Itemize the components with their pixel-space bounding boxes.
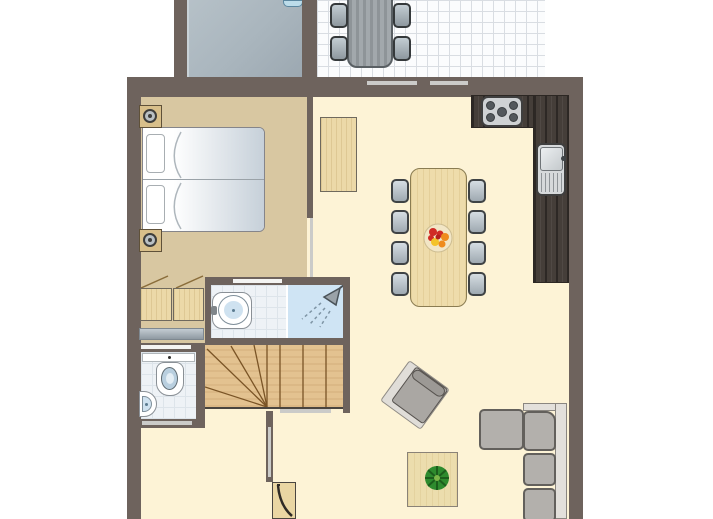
terrace-chair [330, 36, 348, 61]
wall-bathroom-bottom [205, 338, 343, 345]
dining-chair [391, 179, 409, 203]
toilet-bowl [156, 362, 184, 396]
dining-chair [468, 241, 486, 265]
door-swing-icon [273, 483, 294, 517]
sofa-cushion [523, 453, 556, 486]
terrace-chair [330, 3, 348, 28]
lamp-icon [143, 109, 157, 123]
plant-icon [422, 463, 452, 493]
dining-chair [391, 241, 409, 265]
dining-chair [391, 272, 409, 296]
dining-chair [468, 210, 486, 234]
flush-button-icon [168, 356, 171, 359]
tall-cabinet [320, 117, 357, 192]
sliding-door-marker [430, 81, 468, 85]
burner-icon [486, 101, 495, 110]
nightstand [139, 229, 162, 252]
burner-icon [509, 101, 518, 110]
wall-bathroom-right [343, 277, 350, 413]
lamp-icon [143, 233, 157, 247]
bed-fold-lines [143, 128, 266, 233]
wc-door-marker [142, 421, 192, 425]
sliding-door-marker [367, 81, 417, 85]
terrace-chair [393, 3, 411, 28]
wall-top [127, 77, 583, 97]
wall-bathroom-left [205, 285, 211, 345]
toilet-cistern [142, 353, 195, 362]
drain-icon [232, 309, 235, 312]
hall-opening-marker [268, 427, 271, 477]
cabinet-open-door-lines [138, 272, 208, 288]
wall-right [569, 97, 583, 519]
burner-icon [486, 113, 495, 122]
stair-treads [205, 345, 343, 407]
sofa-chaise-cushion [479, 409, 524, 450]
wc-door-marker [141, 345, 191, 349]
showerhead-icon [288, 285, 345, 338]
kitchen-sink [536, 143, 566, 196]
faucet-icon [211, 306, 217, 315]
sofa-cushion [523, 411, 556, 451]
bedroom-bench [139, 328, 204, 340]
fruit-bowl [423, 223, 453, 253]
closet-cabinet [140, 288, 172, 321]
storage-fixture [283, 0, 303, 7]
dining-chair [468, 179, 486, 203]
drain-icon [145, 403, 148, 406]
bathroom-door-marker [233, 279, 282, 283]
terrace-chair [393, 36, 411, 61]
storage-room-floor [187, 0, 302, 77]
wall-left [127, 97, 141, 519]
toilet-seat-inner [166, 373, 174, 384]
burner-icon [497, 107, 507, 117]
front-door [272, 482, 296, 519]
dining-chair [468, 272, 486, 296]
terrace-table [347, 0, 393, 68]
burner-icon [509, 113, 518, 122]
cooktop [481, 96, 523, 127]
staircase [205, 345, 343, 409]
closet-cabinet [173, 288, 204, 321]
shower-floor [286, 285, 343, 338]
nightstand [139, 105, 162, 128]
floor-plan [0, 0, 713, 519]
sofa-frame-right [555, 403, 567, 519]
sink-basin [540, 147, 563, 171]
washbasin [212, 292, 252, 329]
wall-wc-right [196, 343, 205, 428]
bedroom-door-opening [310, 218, 313, 277]
sofa-cushion [523, 488, 556, 519]
drainboard-icon [541, 173, 562, 192]
stair-railing-marker [280, 409, 331, 413]
dining-chair [391, 210, 409, 234]
wall-bedroom-right [307, 97, 313, 218]
double-bed [142, 127, 265, 232]
faucet-icon [561, 156, 566, 161]
